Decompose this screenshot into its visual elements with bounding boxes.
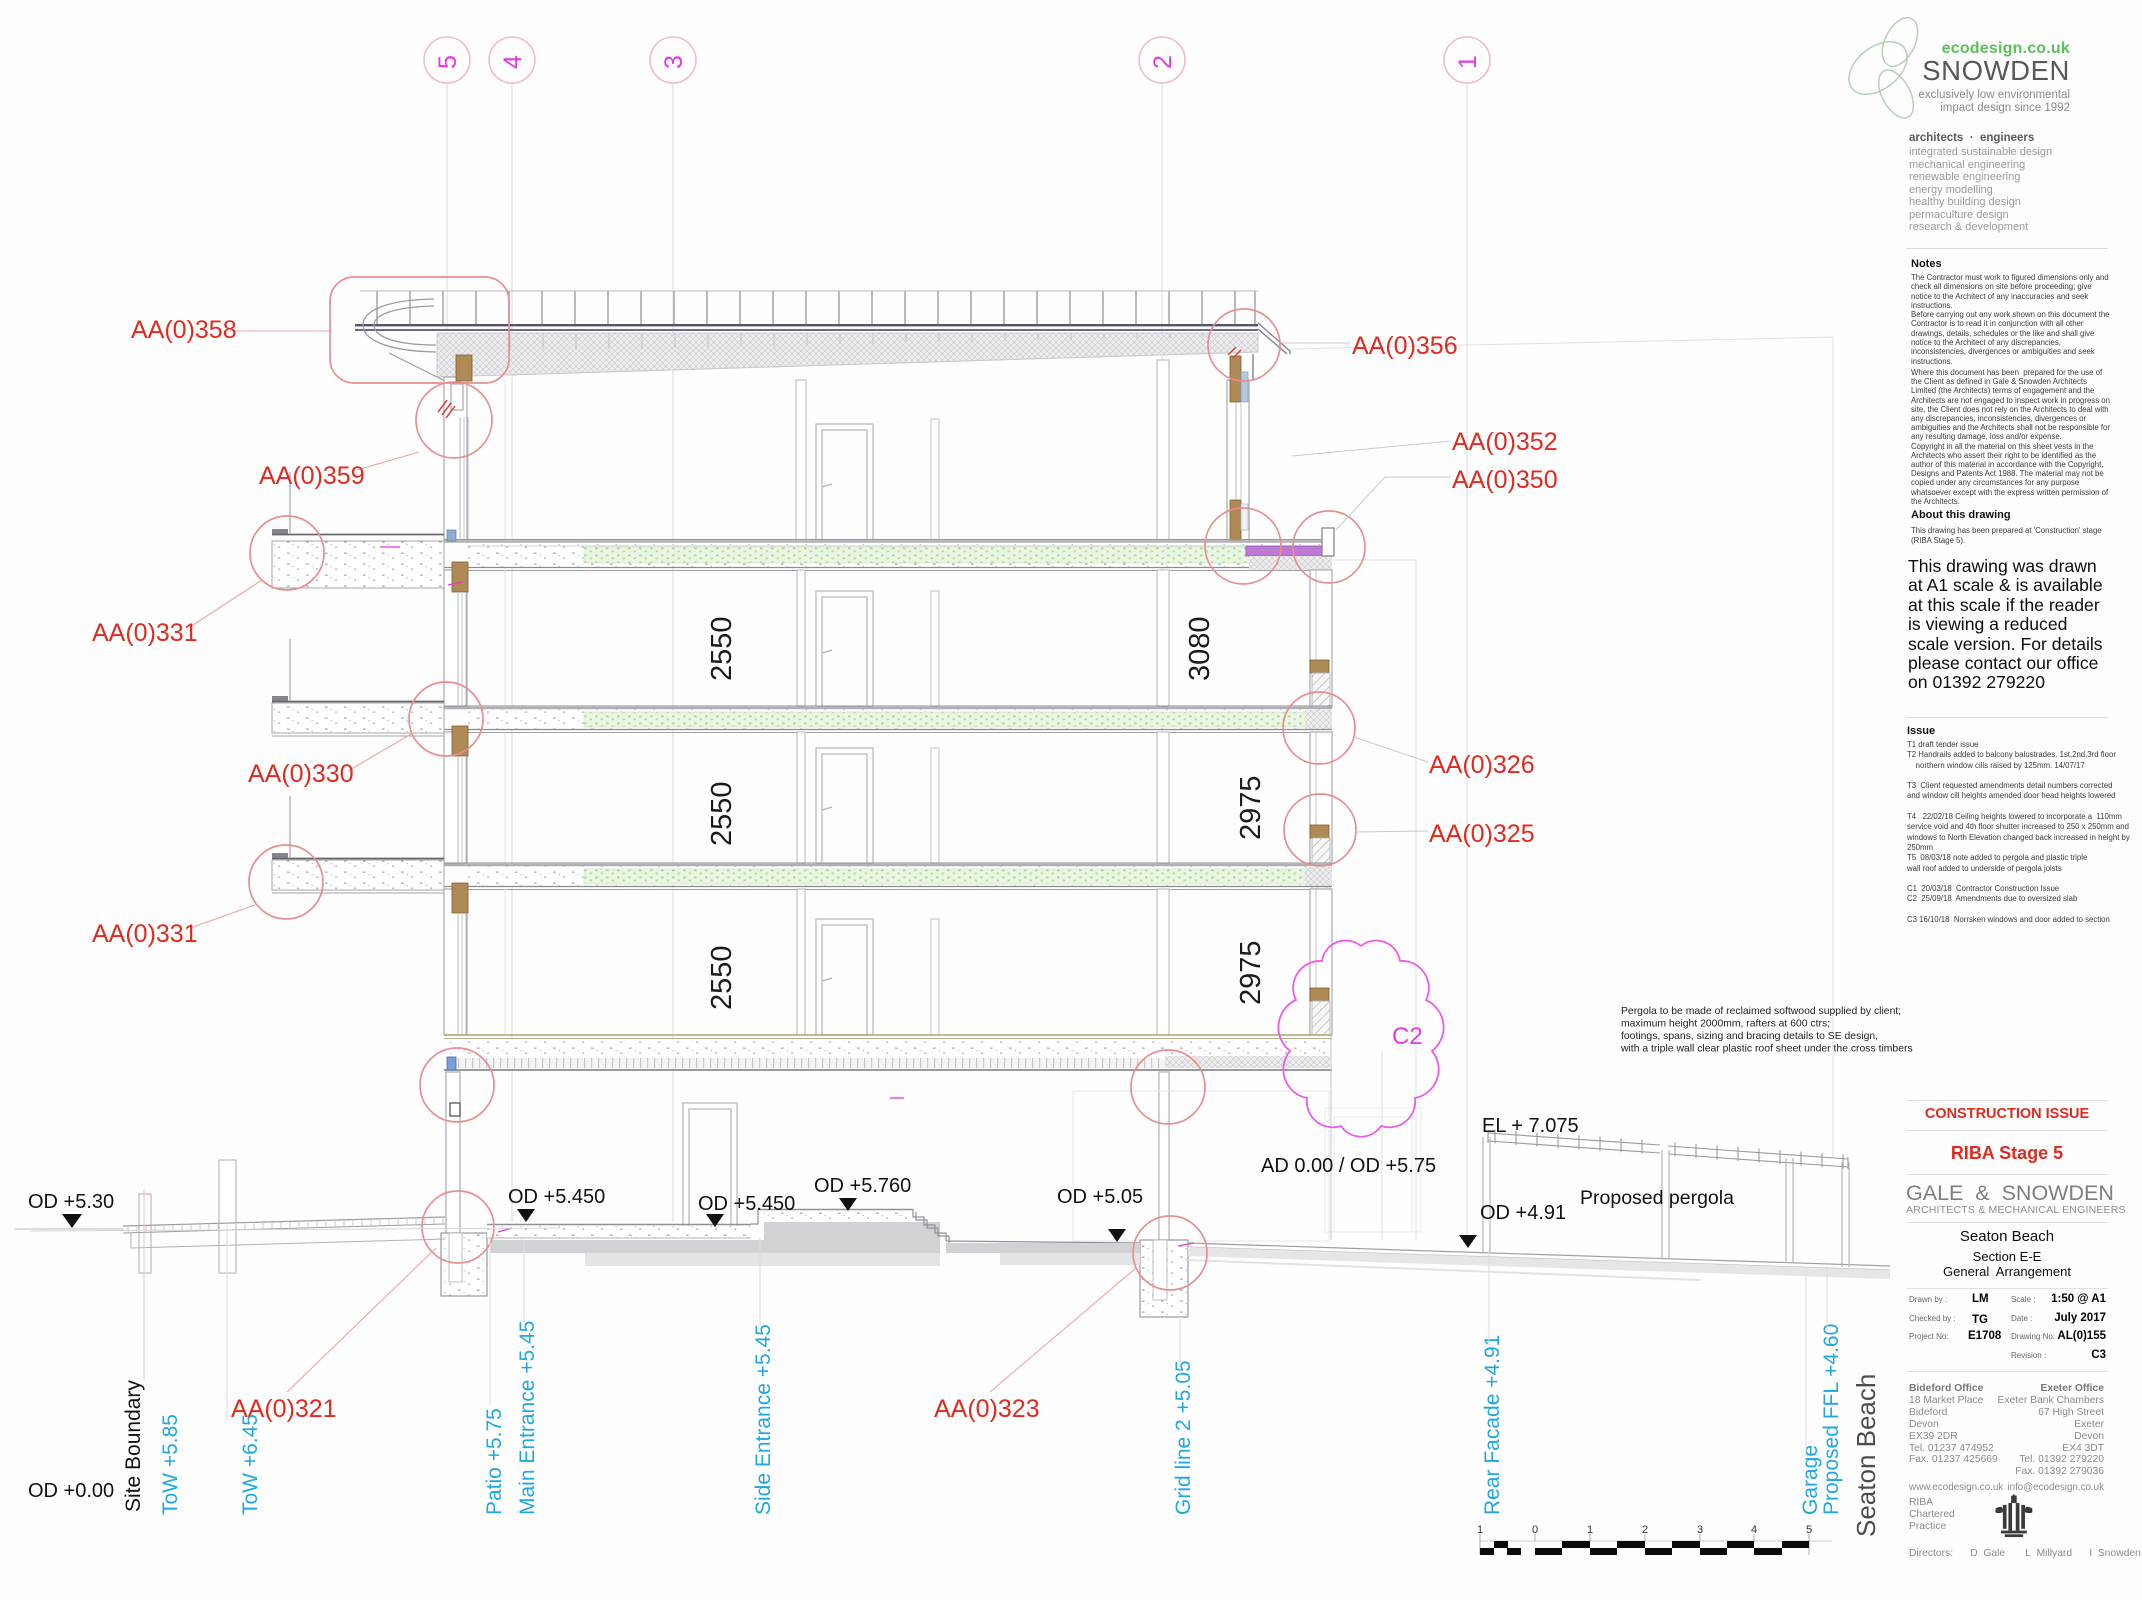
svg-text:AD 0.00 / OD +5.75: AD 0.00 / OD +5.75 xyxy=(1261,1155,1436,1177)
svg-text:2975: 2975 xyxy=(1235,940,1267,1005)
svg-text:5: 5 xyxy=(434,55,462,69)
svg-text:Proposed FFL +4.60: Proposed FFL +4.60 xyxy=(1820,1324,1843,1515)
svg-text:4: 4 xyxy=(499,55,527,69)
svg-text:maximum height 2000mm, rafters: maximum height 2000mm, rafters at 600 ct… xyxy=(1621,1019,1830,1030)
svg-text:1: 1 xyxy=(1454,55,1482,69)
svg-text:Garage: Garage xyxy=(1799,1445,1822,1515)
svg-text:AA(0)326: AA(0)326 xyxy=(1429,751,1535,779)
svg-text:OD +0.00: OD +0.00 xyxy=(28,1480,114,1502)
svg-text:OD +5.30: OD +5.30 xyxy=(28,1191,114,1213)
svg-text:ToW +5.85: ToW +5.85 xyxy=(159,1414,182,1515)
svg-text:AA(0)331: AA(0)331 xyxy=(92,619,198,647)
svg-text:2550: 2550 xyxy=(706,781,738,846)
svg-text:Main Entrance +5.45: Main Entrance +5.45 xyxy=(516,1321,539,1515)
svg-text:EL + 7.075: EL + 7.075 xyxy=(1482,1115,1579,1137)
svg-text:2975: 2975 xyxy=(1235,775,1267,840)
svg-text:2550: 2550 xyxy=(706,945,738,1010)
svg-text:Pergola to be made of reclaime: Pergola to be made of reclaimed softwood… xyxy=(1621,1006,1901,1017)
svg-text:Seaton Beach: Seaton Beach xyxy=(1851,1374,1881,1537)
svg-text:AA(0)350: AA(0)350 xyxy=(1452,466,1558,494)
svg-text:OD +5.760: OD +5.760 xyxy=(814,1175,911,1197)
svg-text:AA(0)358: AA(0)358 xyxy=(131,316,237,344)
svg-text:2550: 2550 xyxy=(706,616,738,681)
svg-text:OD +5.450: OD +5.450 xyxy=(508,1186,605,1208)
svg-text:3080: 3080 xyxy=(1184,616,1216,681)
svg-text:Rear Facade +4.91: Rear Facade +4.91 xyxy=(1481,1335,1504,1515)
svg-text:C2: C2 xyxy=(1392,1023,1423,1050)
svg-text:Site Boundary: Site Boundary xyxy=(122,1380,145,1512)
svg-text:Proposed pergola: Proposed pergola xyxy=(1580,1187,1734,1209)
svg-text:3: 3 xyxy=(660,55,688,69)
svg-text:AA(0)331: AA(0)331 xyxy=(92,920,198,948)
svg-text:Side Entrance +5.45: Side Entrance +5.45 xyxy=(752,1324,775,1515)
svg-text:footings, spans, sizing and br: footings, spans, sizing and bracing deta… xyxy=(1621,1031,1878,1042)
svg-text:AA(0)359: AA(0)359 xyxy=(259,462,365,490)
svg-text:AA(0)330: AA(0)330 xyxy=(248,760,354,788)
svg-text:OD +5.450: OD +5.450 xyxy=(698,1193,795,1215)
svg-text:2: 2 xyxy=(1149,55,1177,69)
svg-text:AA(0)352: AA(0)352 xyxy=(1452,428,1558,456)
svg-text:AA(0)325: AA(0)325 xyxy=(1429,820,1535,848)
svg-text:Grid line 2 +5.05: Grid line 2 +5.05 xyxy=(1172,1360,1195,1515)
svg-text:OD +5.05: OD +5.05 xyxy=(1057,1186,1143,1208)
svg-text:AA(0)323: AA(0)323 xyxy=(934,1395,1040,1423)
svg-text:ToW +6.45: ToW +6.45 xyxy=(239,1414,262,1515)
svg-text:OD +4.91: OD +4.91 xyxy=(1480,1202,1566,1224)
svg-text:with a triple wall clear plast: with a triple wall clear plastic roof sh… xyxy=(1620,1044,1913,1055)
svg-text:AA(0)356: AA(0)356 xyxy=(1352,332,1458,360)
svg-text:Patio +5.75: Patio +5.75 xyxy=(483,1408,506,1515)
